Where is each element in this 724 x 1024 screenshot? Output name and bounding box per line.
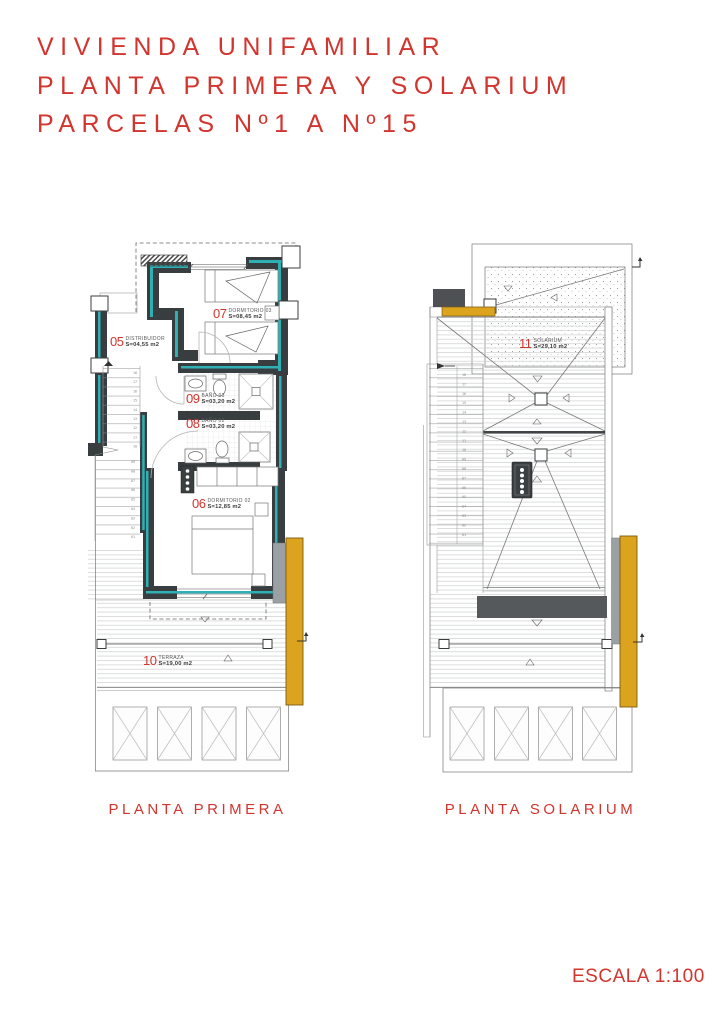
- title-line-1: VIVIENDA UNIFAMILIAR: [37, 28, 573, 67]
- title-line-2: PLANTA PRIMERA Y SOLARIUM: [37, 67, 573, 106]
- svg-text:09: 09: [462, 458, 466, 462]
- svg-text:18: 18: [462, 373, 466, 377]
- slab-band: [477, 596, 607, 618]
- nightstand: [265, 306, 279, 320]
- planter-box: [113, 707, 147, 760]
- svg-text:17: 17: [462, 382, 466, 386]
- nightstand: [255, 503, 268, 516]
- double-bed: [192, 516, 253, 574]
- svg-text:03: 03: [462, 514, 466, 518]
- railing-post: [439, 640, 449, 649]
- orange-parapet: [286, 538, 303, 705]
- svg-text:01: 01: [131, 535, 135, 539]
- svg-text:13: 13: [133, 417, 137, 421]
- svg-text:04: 04: [462, 505, 466, 509]
- toilet: [216, 441, 228, 457]
- svg-text:13: 13: [462, 420, 466, 424]
- svg-text:08: 08: [462, 467, 466, 471]
- title-line-3: PARCELAS Nº1 A Nº15: [37, 105, 573, 144]
- svg-text:15: 15: [462, 401, 466, 405]
- svg-text:02: 02: [462, 523, 466, 527]
- svg-text:11: 11: [462, 439, 466, 443]
- svg-text:02: 02: [131, 526, 135, 530]
- planta-solarium-drawing: 181716151413121110090807060504030201: [408, 235, 658, 780]
- orange-parapet: [620, 536, 637, 707]
- svg-text:07: 07: [131, 479, 135, 483]
- svg-text:05: 05: [462, 495, 466, 499]
- svg-text:15: 15: [133, 399, 137, 403]
- svg-text:09: 09: [131, 460, 135, 464]
- svg-text:06: 06: [462, 486, 466, 490]
- svg-text:11: 11: [133, 435, 137, 439]
- planter-box: [539, 707, 573, 760]
- hatched-wall-strip: [141, 255, 187, 266]
- svg-text:17: 17: [133, 380, 137, 384]
- stairs-left-numbers-lower: 090807060504030201: [131, 460, 135, 539]
- svg-text:12: 12: [133, 426, 137, 430]
- twin-beds: [205, 270, 279, 354]
- nightstand: [252, 574, 265, 586]
- caption-planta-solarium: PLANTA SOLARIUM: [418, 801, 663, 818]
- title-block: VIVIENDA UNIFAMILIAR PLANTA PRIMERA Y SO…: [37, 28, 573, 144]
- svg-text:08: 08: [131, 469, 135, 473]
- svg-text:14: 14: [133, 408, 137, 412]
- svg-text:10: 10: [462, 448, 466, 452]
- svg-text:01: 01: [462, 533, 466, 537]
- caption-planta-primera: PLANTA PRIMERA: [80, 801, 315, 818]
- svg-text:03: 03: [131, 516, 135, 520]
- slab-strip: [612, 538, 621, 644]
- side-elements: [612, 536, 645, 707]
- planter-box: [202, 707, 236, 760]
- master-bed-group: [181, 466, 278, 586]
- svg-text:04: 04: [131, 507, 135, 511]
- svg-text:16: 16: [462, 392, 466, 396]
- svg-text:14: 14: [462, 411, 466, 415]
- svg-text:05: 05: [131, 498, 135, 502]
- drawing-sheet: VIVIENDA UNIFAMILIAR PLANTA PRIMERA Y SO…: [0, 0, 724, 1024]
- planter-box: [158, 707, 192, 760]
- planters: [450, 707, 617, 760]
- svg-text:10: 10: [133, 445, 137, 449]
- scale-label: ESCALA 1:100: [572, 966, 705, 988]
- slab-strip: [273, 543, 286, 603]
- planter-box: [450, 707, 484, 760]
- drain-hook: [632, 257, 643, 267]
- svg-text:07: 07: [462, 476, 466, 480]
- svg-text:06: 06: [131, 488, 135, 492]
- railing-post: [263, 640, 272, 649]
- orange-parapet-top: [442, 307, 495, 316]
- svg-text:16: 16: [133, 389, 137, 393]
- planter-box: [583, 707, 617, 760]
- svg-text:12: 12: [462, 429, 466, 433]
- svg-text:18: 18: [133, 371, 137, 375]
- planta-primera-drawing: 181716151413121110 090807060504030201: [85, 235, 320, 780]
- railing-post: [97, 640, 106, 649]
- planter-box: [247, 707, 281, 760]
- toilet: [214, 380, 226, 396]
- planters: [113, 707, 281, 760]
- stairs-left-numbers-upper: 181716151413121110: [133, 371, 137, 449]
- wardrobe: [197, 467, 278, 486]
- railing-post: [602, 640, 612, 649]
- dark-block: [433, 289, 465, 307]
- planter-box: [495, 707, 529, 760]
